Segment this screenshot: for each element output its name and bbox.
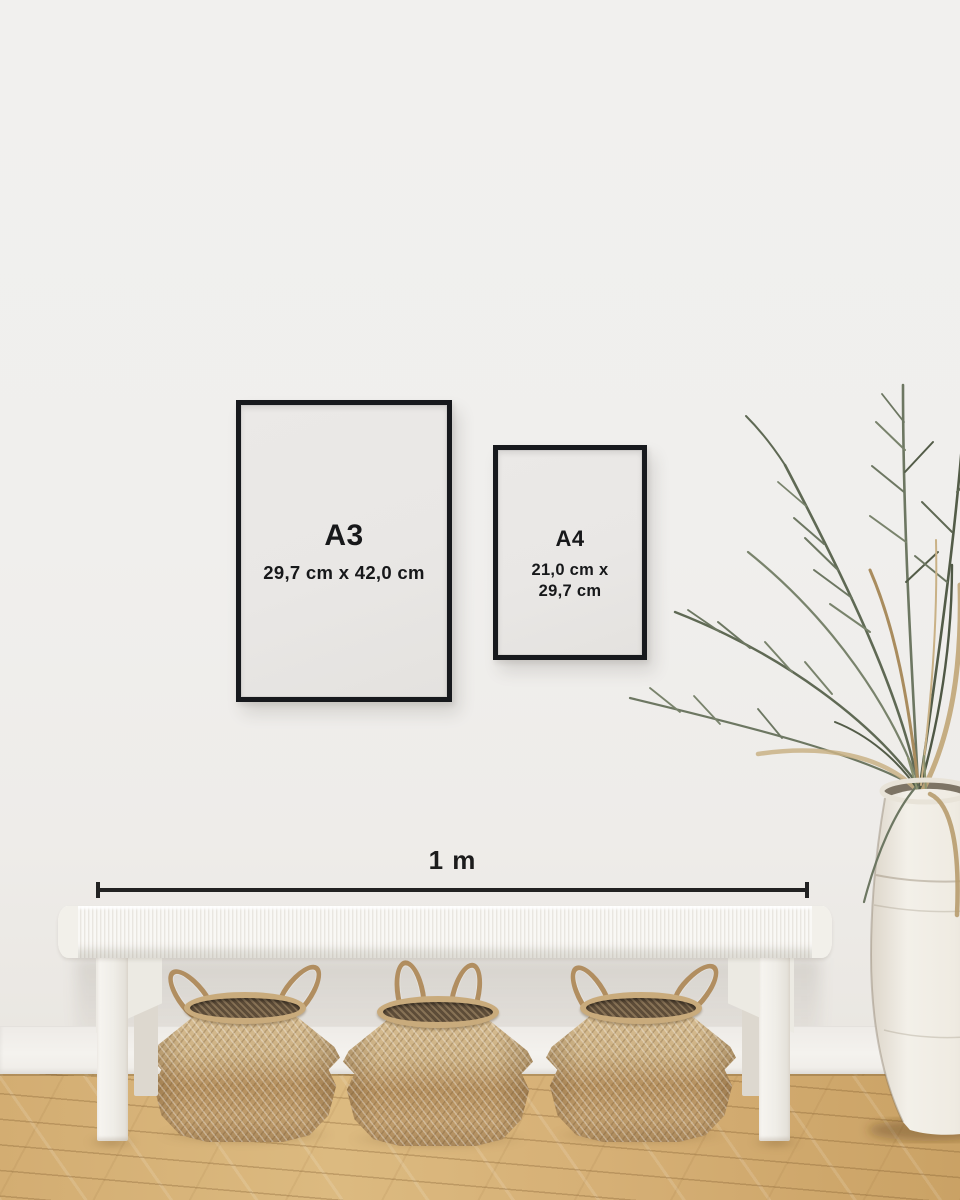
basket-rim <box>580 992 702 1024</box>
seagrass-basket-right <box>546 992 736 1142</box>
basket-body <box>150 1008 340 1142</box>
basket-body <box>343 1012 533 1146</box>
bench-seat <box>58 906 832 958</box>
bench-leg-front-left <box>97 955 128 1141</box>
frame-a4-dimensions-line1: 21,0 cm x <box>531 560 608 581</box>
frame-a4-dimensions: 21,0 cm x 29,7 cm <box>531 560 608 602</box>
scale-tick-left <box>96 882 100 898</box>
frame-a3-label: A3 <box>324 519 363 553</box>
frame-a4-dimensions-line2: 29,7 cm <box>531 581 608 602</box>
bench-seat-end-cap <box>58 906 78 958</box>
bench-seat-end-cap <box>812 906 832 958</box>
basket-rim <box>184 992 306 1024</box>
frame-a3: A3 29,7 cm x 42,0 cm <box>236 400 452 702</box>
size-guide-mockup: A3 29,7 cm x 42,0 cm A4 21,0 cm x 29,7 c… <box>0 0 960 1200</box>
bench-leg-front-right <box>759 955 790 1141</box>
basket-rim <box>377 996 499 1028</box>
frame-a3-dimensions: 29,7 cm x 42,0 cm <box>263 562 424 584</box>
seagrass-basket-middle <box>343 996 533 1146</box>
seagrass-basket-left <box>150 992 340 1142</box>
frame-a4-label: A4 <box>555 526 584 552</box>
basket-body <box>546 1008 736 1142</box>
